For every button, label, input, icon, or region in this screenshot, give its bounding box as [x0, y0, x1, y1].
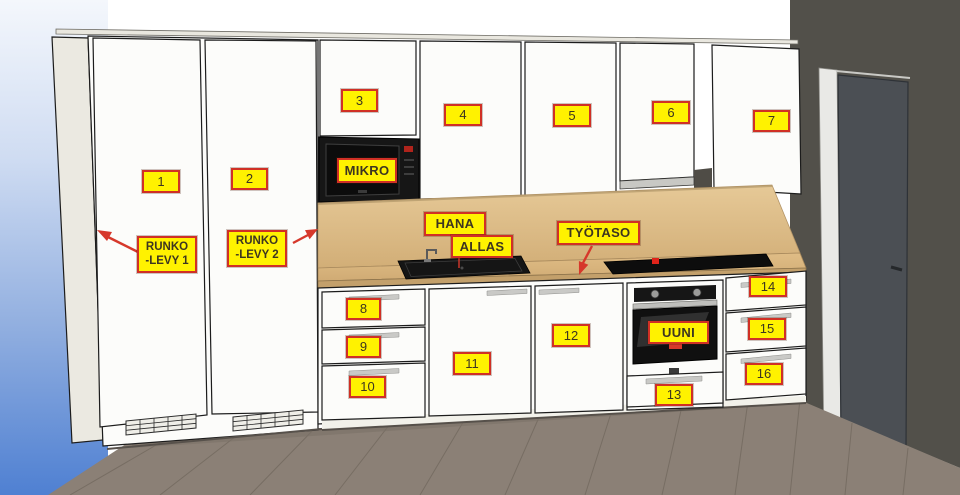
callout-9: 9	[346, 336, 381, 358]
callout-mikro: MIKRO	[337, 158, 397, 183]
callout-uuni: UUNI	[648, 321, 709, 344]
base-cabinet-12	[535, 283, 623, 413]
callout-allas: ALLAS	[451, 235, 513, 258]
microwave-latch	[358, 190, 367, 193]
callout-8: 8	[346, 298, 381, 320]
oven-knob-left	[651, 290, 659, 298]
upper-cabinet-3	[320, 40, 416, 136]
tall-cabinet-door-2	[205, 40, 318, 414]
sink-drain	[461, 267, 464, 270]
microwave-indicator-lights	[404, 146, 413, 152]
callout-tyotaso: TYÖTASO	[557, 221, 640, 245]
callout-15: 15	[748, 318, 786, 340]
callout-12: 12	[552, 324, 590, 347]
wall-sliver-dark	[694, 168, 712, 190]
callout-10: 10	[349, 376, 386, 398]
faucet-base	[424, 259, 431, 262]
callout-4: 4	[444, 104, 482, 126]
room-door	[838, 75, 908, 448]
cooktop-knob-red	[652, 258, 659, 264]
callout-5: 5	[553, 104, 591, 127]
callout-1: 1	[142, 170, 180, 193]
callout-runko-levy-1: RUNKO -LEVY 1	[137, 236, 197, 273]
kitchen-elevation-drawing: 1 2 3 4 5 6 7 8 9 10 11 12 13 14 15 16 M…	[0, 0, 960, 495]
callout-2: 2	[231, 168, 268, 190]
callout-3: 3	[341, 89, 378, 112]
callout-7: 7	[753, 110, 790, 132]
callout-13: 13	[655, 384, 693, 406]
oven-knob-right	[693, 289, 701, 297]
callout-11: 11	[453, 352, 491, 375]
callout-runko-levy-2: RUNKO -LEVY 2	[227, 230, 287, 267]
callout-6: 6	[652, 101, 690, 124]
callout-hana: HANA	[424, 212, 486, 236]
callout-16: 16	[745, 363, 783, 385]
sink-cabinet-11	[429, 286, 531, 416]
callout-14: 14	[749, 276, 787, 297]
